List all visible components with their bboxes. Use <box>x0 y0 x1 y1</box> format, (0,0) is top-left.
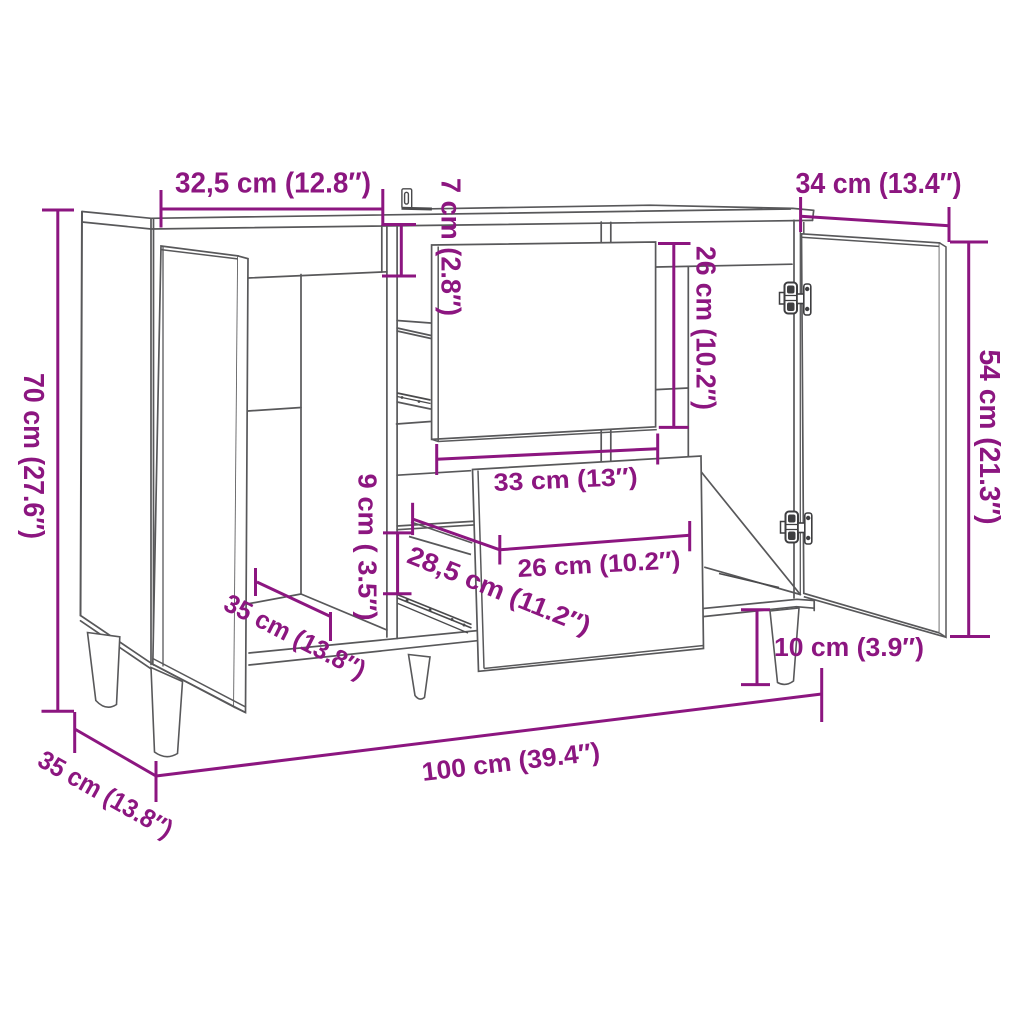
svg-text:32,5 cm (12.8″): 32,5 cm (12.8″) <box>175 168 371 200</box>
svg-text:34 cm (13.4″): 34 cm (13.4″) <box>796 168 962 200</box>
svg-text:10 cm (3.9″): 10 cm (3.9″) <box>774 634 924 662</box>
svg-text:26 cm (10.2″): 26 cm (10.2″) <box>691 246 722 410</box>
svg-text:9 cm ( 3.5″): 9 cm ( 3.5″) <box>353 474 381 621</box>
svg-text:70 cm (27.6″): 70 cm (27.6″) <box>17 373 49 539</box>
svg-text:54 cm (21.3″): 54 cm (21.3″) <box>973 350 1005 525</box>
svg-text:7 cm (2.8″): 7 cm (2.8″) <box>436 178 467 316</box>
